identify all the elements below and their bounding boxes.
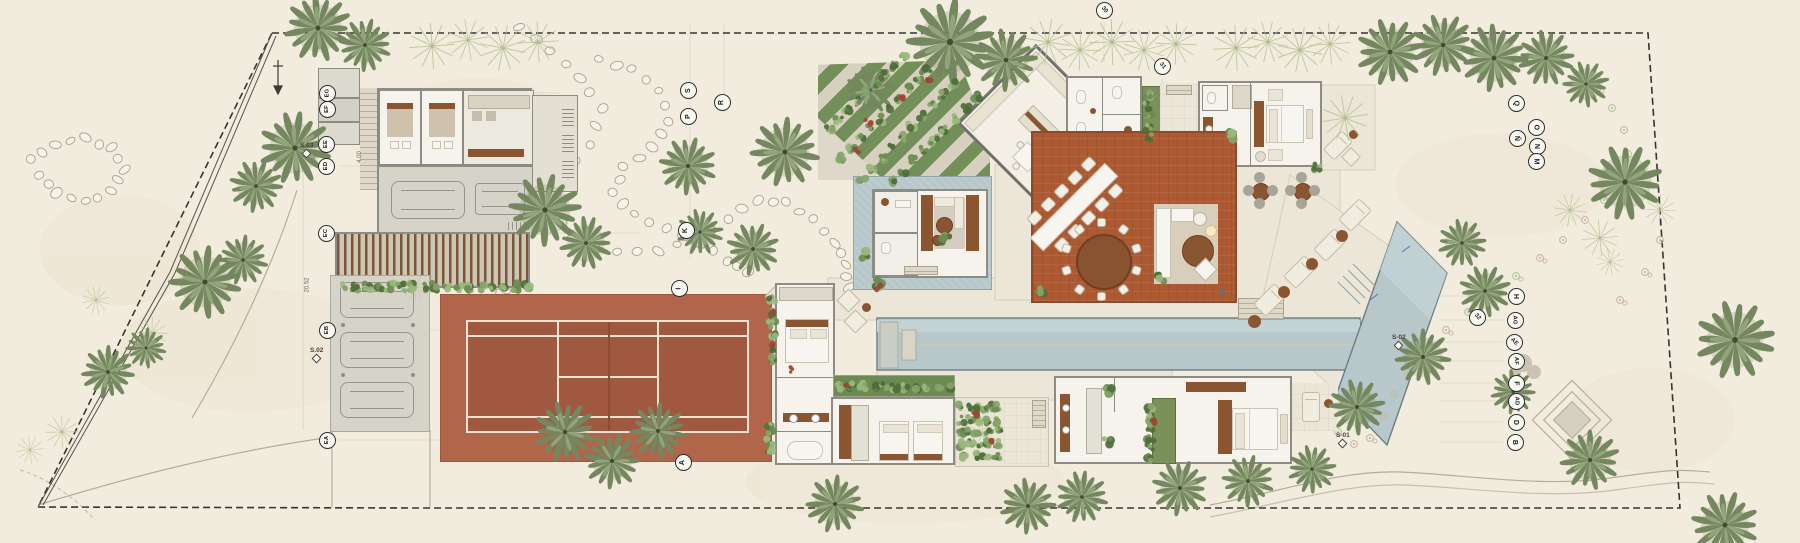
grid-bubble-east: AF	[1508, 353, 1525, 370]
grid-bubble-east: Ñ	[1509, 130, 1526, 147]
section-marker: S.03	[300, 142, 313, 157]
grid-bubble-east: Q	[1508, 95, 1525, 112]
grid-bubble-west: EC	[318, 225, 335, 242]
grid-bubble-east: D	[1508, 414, 1525, 431]
grid-bubble-mid: R	[714, 94, 731, 111]
grid-bubble-mid: A	[675, 454, 692, 471]
grid-bubble-east: AG	[1507, 312, 1524, 329]
grid-bubble-west: EB	[319, 322, 336, 339]
grid-bubble-east: F	[1508, 375, 1525, 392]
site-plan-canvas: EGEFEEEDECEBEASRPKIAQOÑNMHAGAEAFFADDB303…	[0, 0, 1800, 543]
grid-bubble-west: ED	[318, 158, 335, 175]
grid-bubble-east: M	[1528, 153, 1545, 170]
grid-bubble-west: EE	[318, 136, 335, 153]
grid-bubble-east: O	[1528, 119, 1545, 136]
grid-bubble-number: 31	[1154, 58, 1171, 75]
grid-bubble-east: H	[1508, 288, 1525, 305]
dimension-label: 4.00	[357, 151, 363, 163]
grid-bubble-mid: P	[680, 108, 697, 125]
grid-bubble-mid: I	[671, 280, 688, 297]
grid-bubble-east: N	[1529, 138, 1546, 155]
grid-bubble-west: EG	[319, 85, 336, 102]
grid-bubble-west: EF	[319, 101, 336, 118]
grid-bubble-east: AE	[1506, 334, 1523, 351]
dimension-label: 20.52	[305, 277, 311, 292]
grid-bubble-number: 32	[1469, 309, 1486, 326]
grid-markers-layer: EGEFEEEDECEBEASRPKIAQOÑNMHAGAEAFFADDB303…	[0, 0, 1800, 543]
section-marker: S-01	[1336, 432, 1350, 447]
grid-bubble-east: AD	[1508, 393, 1525, 410]
grid-bubble-east: B	[1507, 434, 1524, 451]
grid-bubble-mid: S	[680, 82, 697, 99]
grid-bubble-mid: K	[678, 222, 695, 239]
section-marker: S-02	[1392, 334, 1406, 349]
grid-bubble-west: EA	[319, 432, 336, 449]
grid-bubble-number: 30	[1096, 2, 1113, 19]
section-marker: S.02	[310, 347, 323, 362]
